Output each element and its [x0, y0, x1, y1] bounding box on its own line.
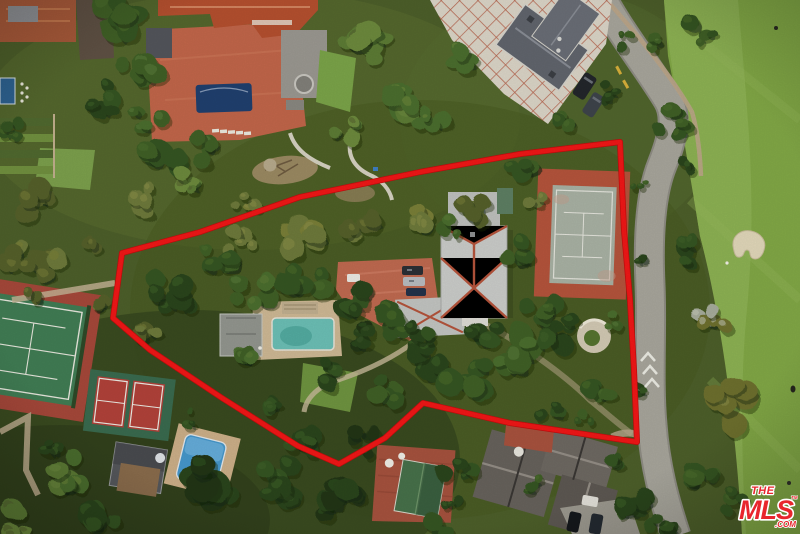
aerial-photo: THE MLS TM .COM	[0, 0, 800, 534]
aerial-photo-canvas: THE MLS TM .COM	[0, 0, 800, 534]
mls-com: .COM	[775, 520, 796, 529]
film-grain	[0, 0, 800, 534]
mls-tm: TM	[791, 495, 798, 500]
